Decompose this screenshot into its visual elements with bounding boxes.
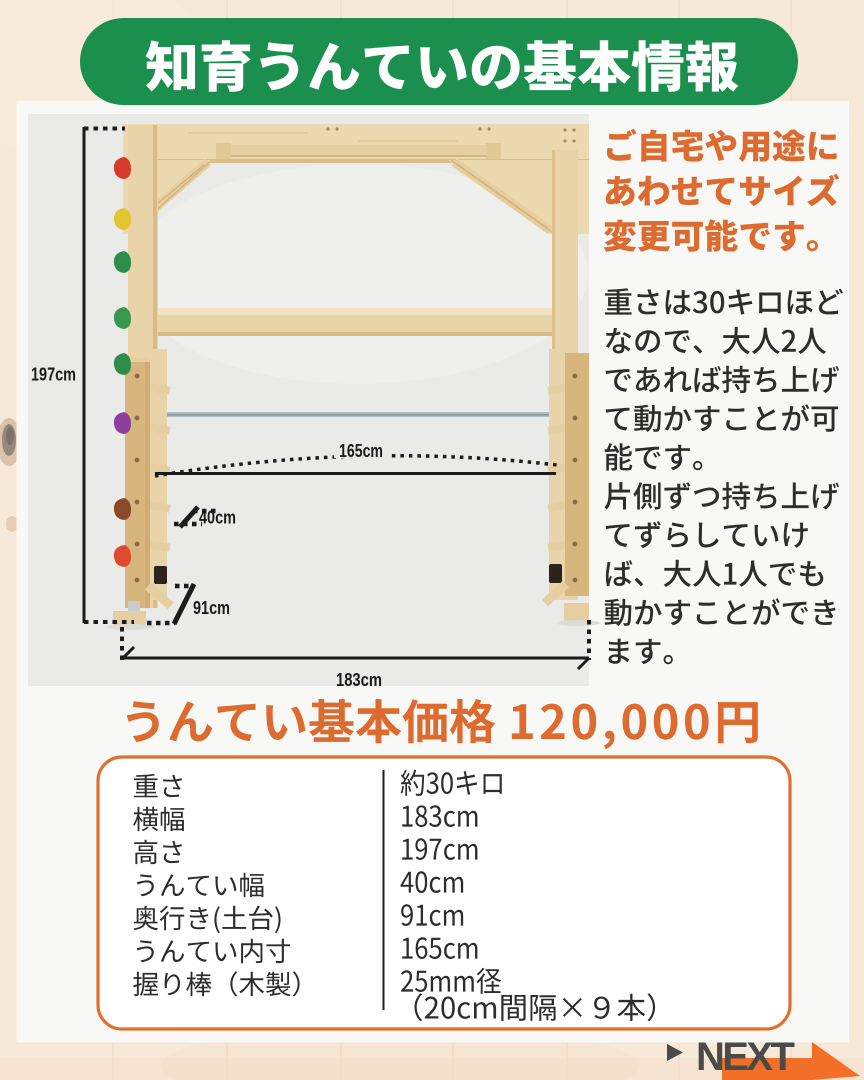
- svg-text:40cm: 40cm: [199, 508, 236, 528]
- svg-text:165cm: 165cm: [339, 441, 383, 461]
- svg-text:NEXT: NEXT: [696, 1035, 794, 1079]
- svg-text:183cm: 183cm: [336, 670, 382, 690]
- svg-text:91cm: 91cm: [193, 598, 230, 618]
- svg-text:197cm: 197cm: [31, 365, 76, 385]
